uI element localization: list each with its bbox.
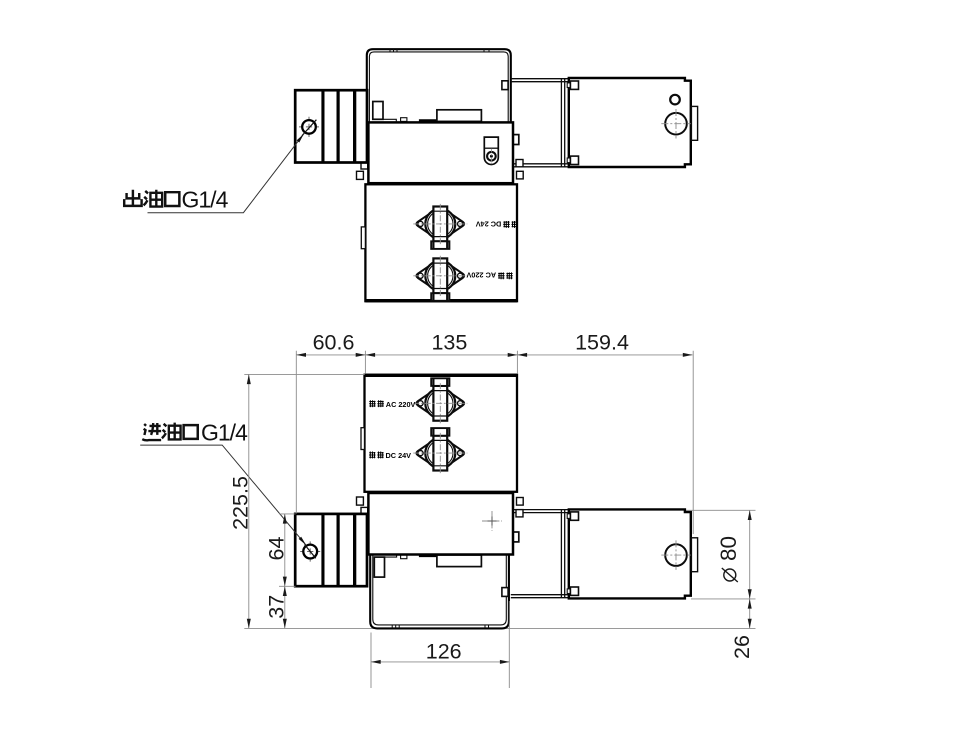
svg-text:AC 220V: AC 220V: [386, 400, 416, 409]
svg-text:G1/4: G1/4: [182, 186, 229, 212]
svg-text:37: 37: [265, 595, 289, 619]
svg-text:60.6: 60.6: [313, 331, 355, 355]
svg-text:AC 220V: AC 220V: [466, 271, 496, 280]
svg-text:G1/4: G1/4: [201, 420, 248, 446]
svg-text:DC 24V: DC 24V: [386, 451, 412, 460]
svg-text:64: 64: [265, 537, 289, 561]
svg-text:26: 26: [730, 635, 754, 659]
svg-text:135: 135: [431, 331, 467, 355]
svg-text:80: 80: [716, 536, 741, 561]
svg-text:DC 24V: DC 24V: [476, 219, 502, 228]
svg-text:159.4: 159.4: [575, 331, 629, 355]
svg-text:225.5: 225.5: [228, 476, 252, 530]
svg-text:126: 126: [426, 639, 462, 663]
